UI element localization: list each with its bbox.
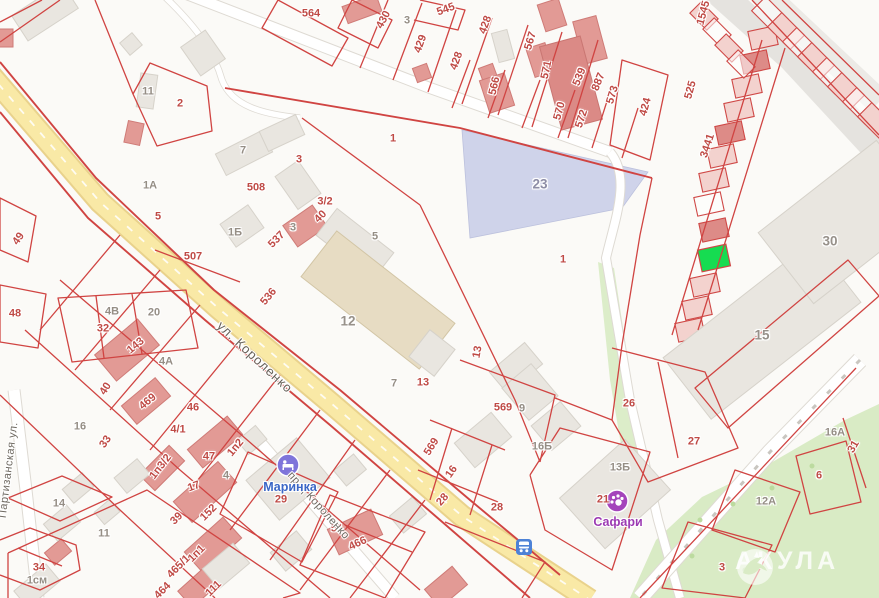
map-canvas[interactable]: 5644303545429428428566567571570539572887… [0, 0, 879, 598]
highlighted-parcel[interactable] [698, 244, 731, 272]
bus-stop-icon[interactable] [516, 539, 532, 555]
map-graphics [0, 0, 879, 598]
leisure-safari-icon[interactable] [606, 490, 628, 512]
hotel-marinka-icon[interactable] [277, 454, 299, 476]
